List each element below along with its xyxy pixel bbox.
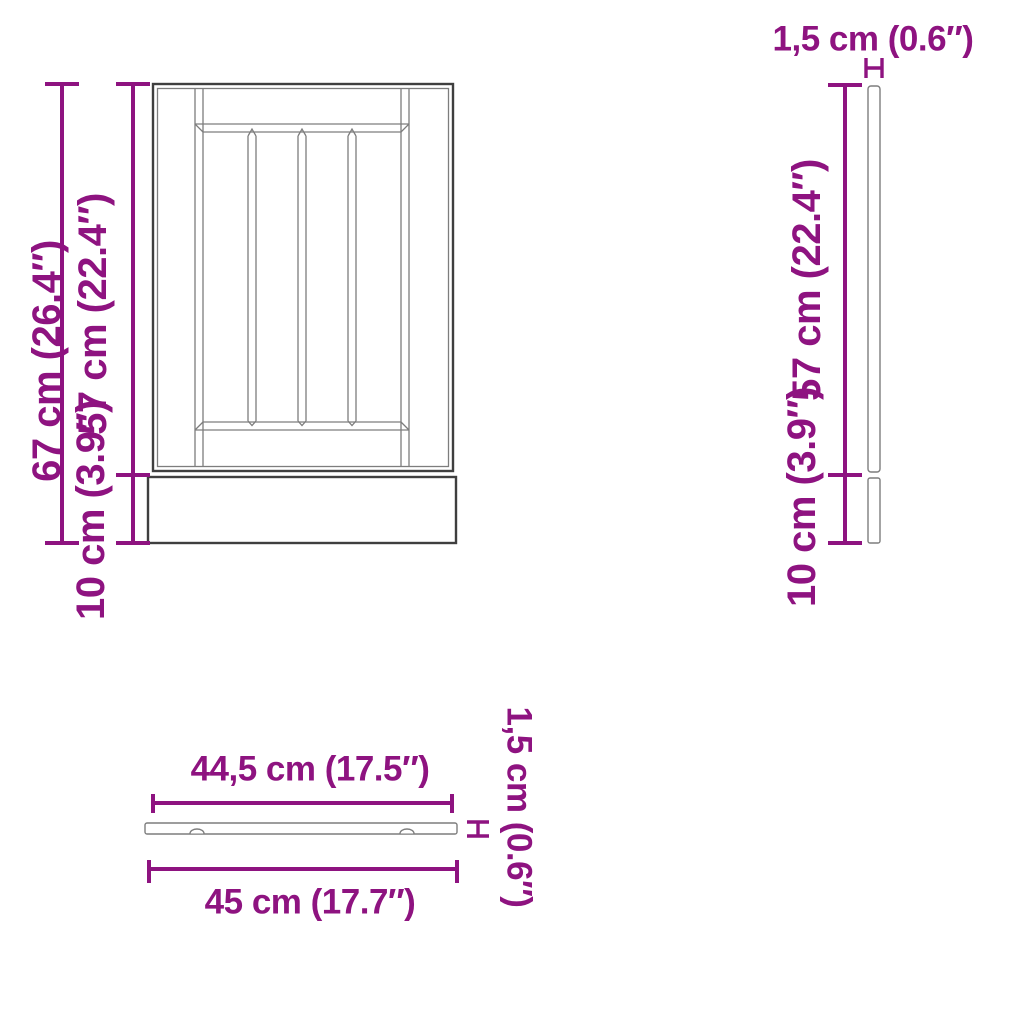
- side-plinth-panel: [868, 478, 880, 543]
- top-total-width-label: 45 cm (17.7″): [205, 885, 416, 920]
- side-plinth-height-label: 10 cm (3.9″): [782, 387, 822, 607]
- side-view-drawing: [868, 86, 880, 543]
- front-door-outline: [153, 84, 453, 471]
- top-thickness-bracket: [467, 822, 489, 836]
- top-panel-width-dim-line: [153, 794, 452, 813]
- front-door-plinth-dim-line: [116, 84, 150, 543]
- side-thickness-bracket: [866, 58, 882, 78]
- side-thickness-label: 1,5 cm (0.6″): [773, 22, 974, 57]
- front-total-height-label: 67 cm (26.4″): [27, 240, 67, 482]
- top-view-drawing: [145, 823, 457, 834]
- side-door-panel: [868, 86, 880, 472]
- top-total-width-dim-line: [149, 860, 457, 883]
- front-door-height-label: 57 cm (22.4″): [73, 193, 113, 435]
- front-view-drawing: [148, 84, 456, 543]
- side-height-dim-line: [828, 85, 862, 543]
- top-thickness-label: 1,5 cm (0.6″): [502, 707, 537, 908]
- side-door-height-label: 57 cm (22.4″): [787, 159, 827, 401]
- top-panel-width-label: 44,5 cm (17.5″): [191, 752, 430, 787]
- front-plinth-outline: [148, 477, 456, 543]
- dimension-diagram: 67 cm (26.4″) 57 cm (22.4″) 10 cm (3.9″)…: [0, 0, 1024, 1024]
- top-view-dimensions: [149, 794, 489, 883]
- front-plinth-height-label: 10 cm (3.9″): [71, 400, 111, 620]
